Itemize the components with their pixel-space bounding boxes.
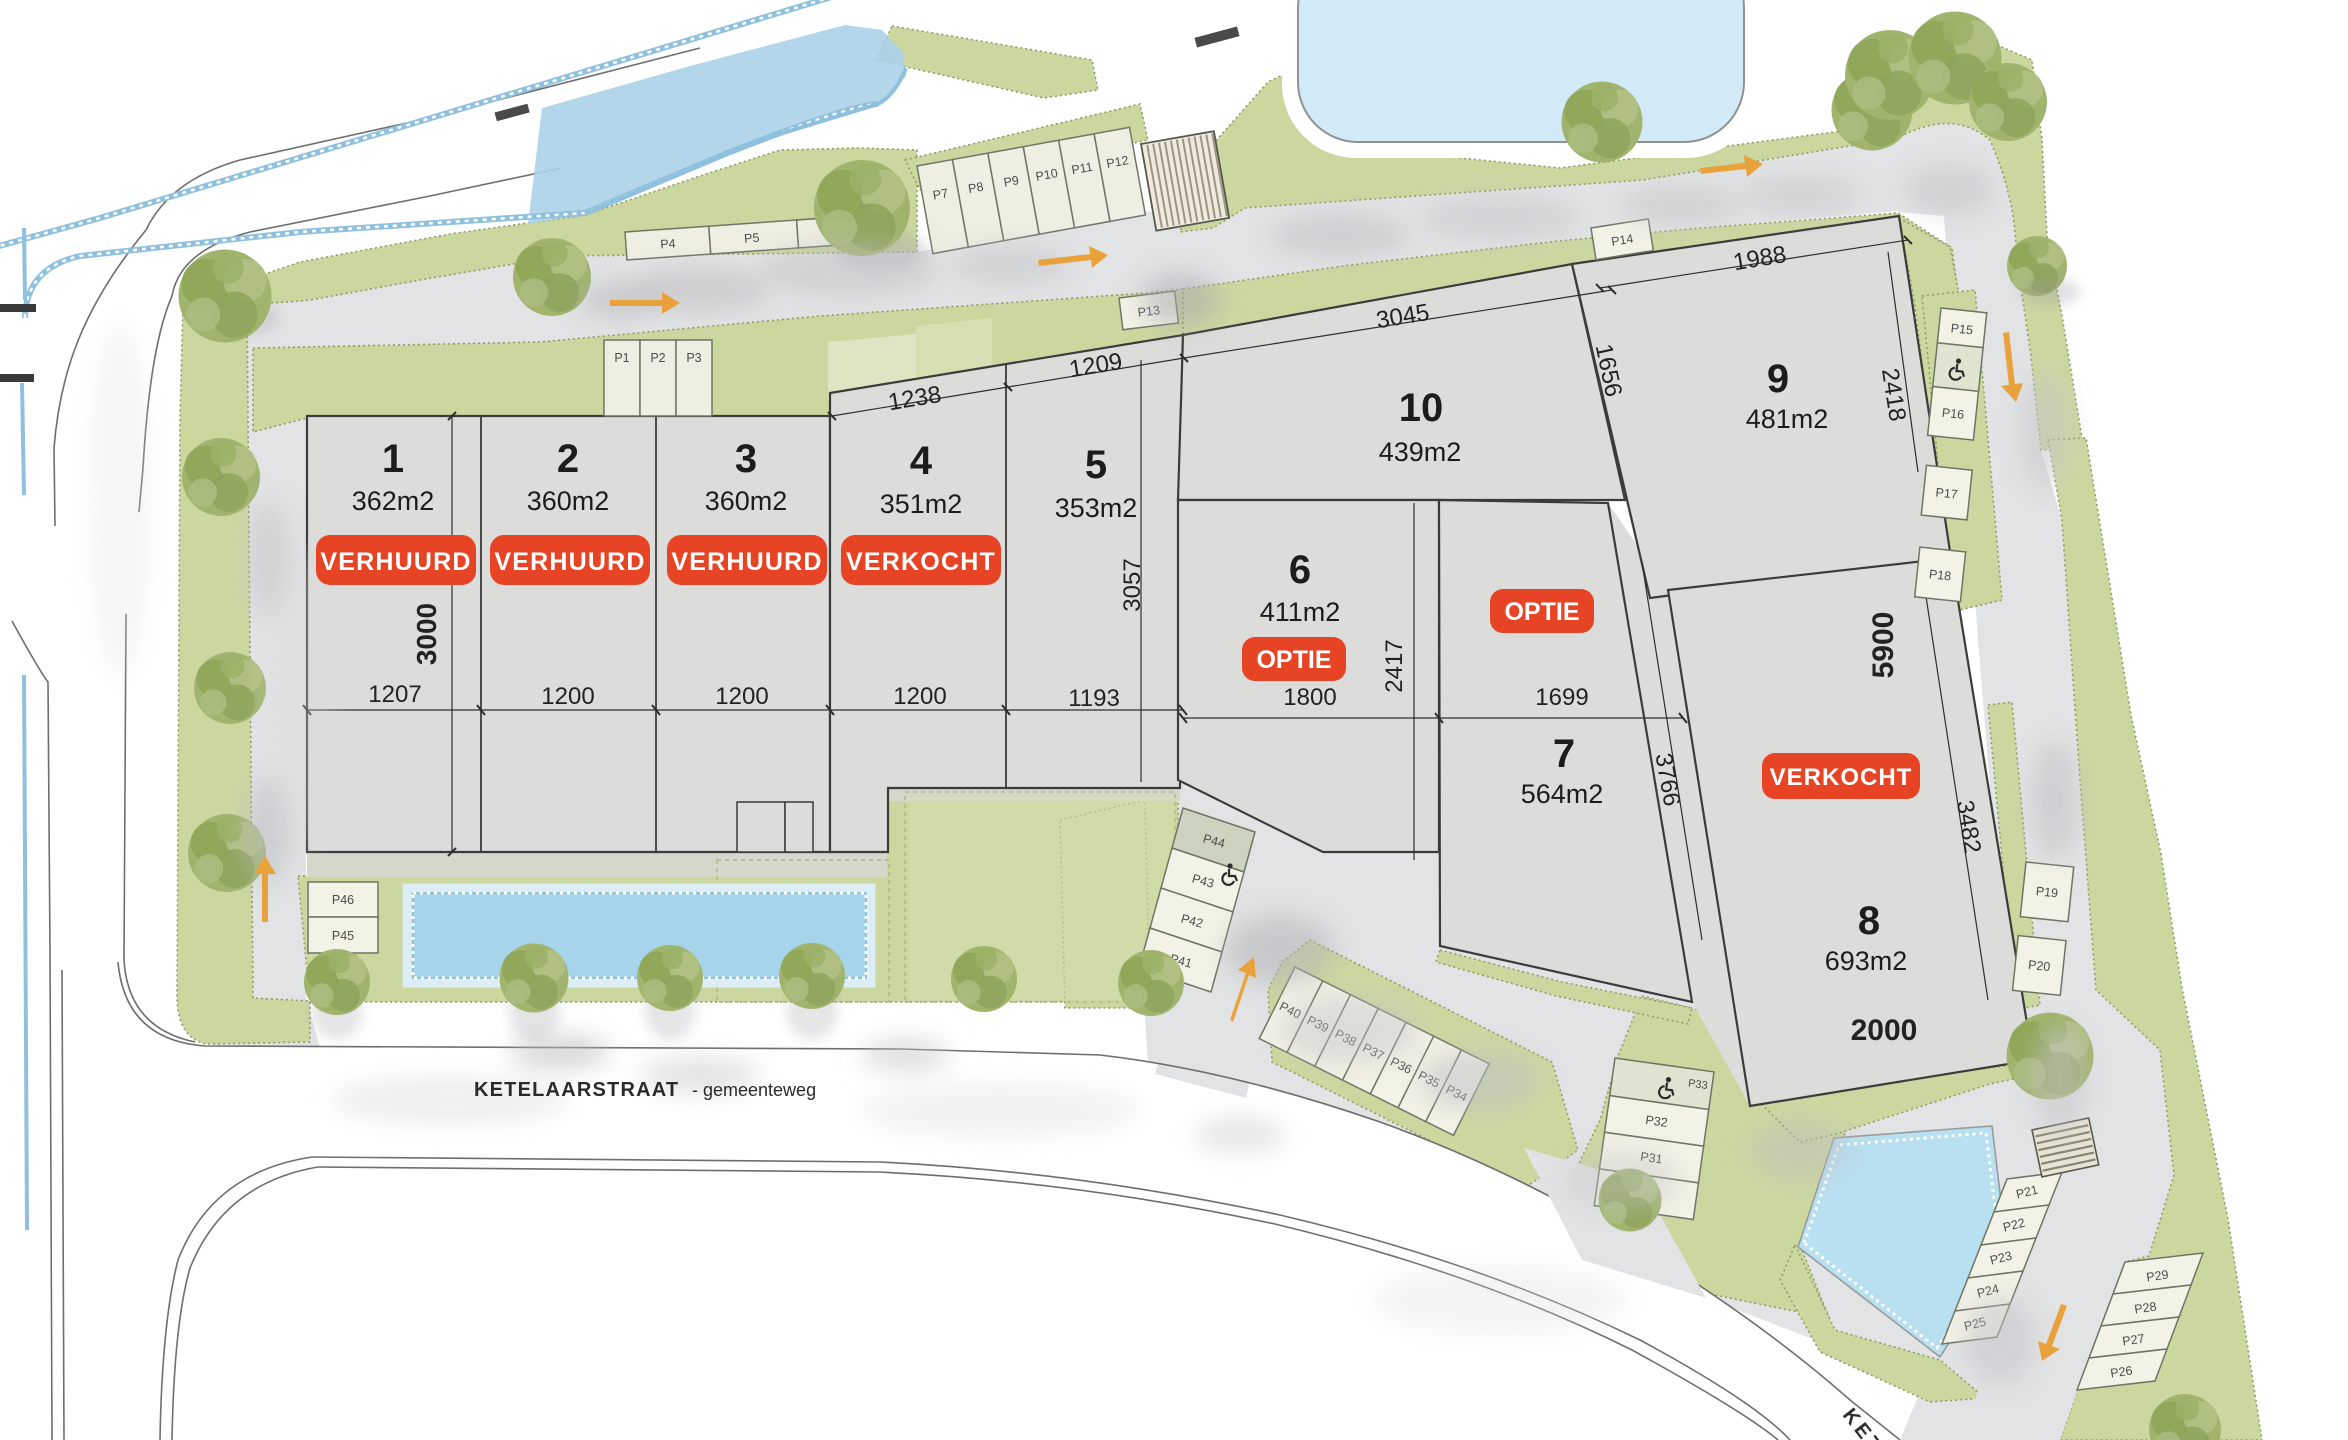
- svg-text:1800: 1800: [1283, 684, 1336, 711]
- svg-text:1200: 1200: [715, 683, 768, 710]
- svg-text:8: 8: [1858, 899, 1880, 943]
- svg-text:1207: 1207: [368, 681, 421, 708]
- svg-text:P46: P46: [332, 893, 354, 907]
- svg-text:P15: P15: [1950, 321, 1974, 337]
- svg-text:P8: P8: [967, 180, 985, 197]
- svg-text:351m2: 351m2: [880, 489, 963, 519]
- svg-text:481m2: 481m2: [1746, 404, 1829, 434]
- svg-text:3: 3: [735, 437, 757, 481]
- svg-text:P2: P2: [650, 351, 665, 365]
- svg-text:5: 5: [1085, 443, 1107, 487]
- svg-text:4: 4: [910, 439, 933, 483]
- svg-text:P17: P17: [1935, 485, 1959, 501]
- svg-text:693m2: 693m2: [1825, 946, 1908, 976]
- svg-text:P9: P9: [1002, 173, 1020, 190]
- svg-text:P3: P3: [686, 351, 701, 365]
- svg-text:P4: P4: [660, 237, 676, 252]
- svg-text:OPTIE: OPTIE: [1504, 598, 1579, 626]
- svg-text:P20: P20: [2027, 958, 2051, 974]
- svg-text:353m2: 353m2: [1055, 493, 1138, 523]
- svg-text:9: 9: [1767, 357, 1789, 401]
- svg-text:VERKOCHT: VERKOCHT: [846, 548, 996, 576]
- svg-text:OPTIE: OPTIE: [1256, 646, 1331, 674]
- svg-text:3057: 3057: [1119, 558, 1146, 611]
- svg-text:P19: P19: [2035, 884, 2059, 900]
- svg-text:P45: P45: [332, 929, 354, 943]
- svg-text:1: 1: [382, 437, 404, 481]
- svg-text:VERKOCHT: VERKOCHT: [1770, 764, 1913, 791]
- svg-text:P1: P1: [614, 351, 629, 365]
- svg-text:362m2: 362m2: [352, 486, 435, 516]
- svg-text:VERHUURD: VERHUURD: [494, 548, 645, 576]
- svg-text:7: 7: [1553, 732, 1575, 776]
- svg-text:3000: 3000: [411, 603, 442, 665]
- svg-text:- gemeenteweg: - gemeenteweg: [692, 1080, 816, 1100]
- svg-text:439m2: 439m2: [1379, 437, 1462, 467]
- svg-text:1200: 1200: [541, 683, 594, 710]
- svg-text:P16: P16: [1941, 406, 1965, 422]
- svg-text:2: 2: [557, 437, 579, 481]
- svg-text:360m2: 360m2: [705, 486, 788, 516]
- svg-text:5900: 5900: [1867, 612, 1900, 679]
- svg-text:1200: 1200: [893, 683, 946, 710]
- svg-text:P7: P7: [932, 186, 950, 203]
- svg-text:10: 10: [1399, 386, 1444, 430]
- svg-text:P5: P5: [744, 231, 760, 246]
- svg-text:411m2: 411m2: [1260, 597, 1341, 627]
- svg-text:KETELAARSTRAAT: KETELAARSTRAAT: [474, 1079, 679, 1101]
- svg-text:1699: 1699: [1535, 684, 1588, 711]
- svg-text:P18: P18: [1928, 567, 1952, 583]
- svg-text:1193: 1193: [1068, 685, 1120, 712]
- svg-text:VERHUURD: VERHUURD: [671, 548, 822, 576]
- svg-text:564m2: 564m2: [1521, 779, 1604, 809]
- svg-text:2000: 2000: [1851, 1014, 1918, 1047]
- svg-text:2417: 2417: [1381, 639, 1408, 692]
- svg-text:360m2: 360m2: [527, 486, 610, 516]
- svg-text:VERHUURD: VERHUURD: [320, 548, 471, 576]
- svg-text:6: 6: [1289, 548, 1311, 592]
